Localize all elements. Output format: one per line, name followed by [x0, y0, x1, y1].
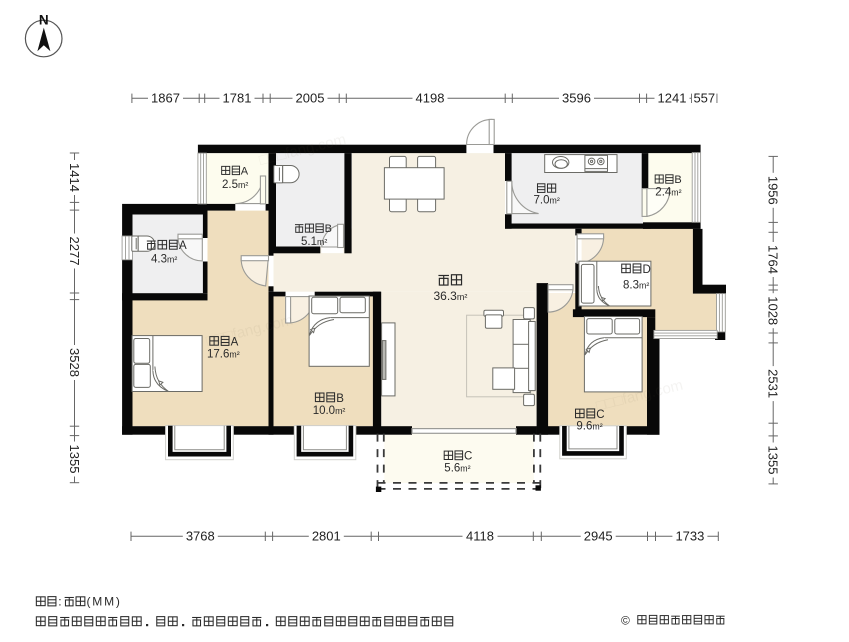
svg-text:7.0m²: 7.0m² [534, 194, 560, 206]
svg-text:A: A [231, 336, 239, 348]
svg-text:1781: 1781 [223, 91, 252, 106]
svg-text:N: N [39, 13, 49, 28]
svg-text:1241: 1241 [658, 91, 687, 106]
svg-text:3768: 3768 [186, 529, 215, 544]
svg-text:8.3m²: 8.3m² [623, 280, 649, 292]
svg-text:B: B [325, 223, 332, 235]
svg-text:2.5m²: 2.5m² [222, 179, 248, 191]
svg-text:1956: 1956 [766, 176, 781, 205]
svg-text:1764: 1764 [766, 245, 781, 274]
svg-text:1414: 1414 [67, 163, 82, 192]
svg-text:C: C [464, 451, 472, 463]
svg-text:2277: 2277 [67, 237, 82, 266]
svg-text:36.3m²: 36.3m² [434, 289, 468, 303]
svg-text:2005: 2005 [296, 91, 325, 106]
svg-text:2801: 2801 [312, 529, 341, 544]
svg-text:3596: 3596 [562, 91, 591, 106]
svg-text:1867: 1867 [151, 91, 180, 106]
svg-text:A: A [241, 166, 249, 178]
svg-text:2945: 2945 [584, 529, 613, 544]
svg-text:1733: 1733 [675, 529, 704, 544]
svg-text:9.6m²: 9.6m² [576, 420, 602, 432]
svg-text:1355: 1355 [766, 446, 781, 475]
svg-text:B: B [336, 393, 344, 405]
svg-text::: : [58, 595, 61, 609]
svg-text:1028: 1028 [766, 296, 781, 325]
svg-text:4198: 4198 [416, 91, 445, 106]
svg-text:4.3m²: 4.3m² [151, 254, 177, 266]
svg-text:A: A [179, 240, 187, 252]
svg-text:2.4m²: 2.4m² [655, 187, 681, 199]
svg-text:3528: 3528 [67, 348, 82, 377]
svg-text:1355: 1355 [67, 445, 82, 474]
svg-text:C: C [596, 409, 604, 421]
svg-text:10.0m²: 10.0m² [313, 405, 346, 417]
svg-text:2531: 2531 [766, 369, 781, 398]
svg-text:4118: 4118 [466, 529, 494, 544]
svg-text:5.1m²: 5.1m² [301, 236, 327, 248]
svg-text:557: 557 [693, 91, 715, 106]
svg-text:17.6m²: 17.6m² [207, 348, 240, 360]
svg-text:5.6m²: 5.6m² [444, 463, 470, 475]
svg-text:(MM): (MM) [87, 595, 122, 609]
svg-text:D: D [643, 264, 651, 276]
svg-text:©: © [621, 614, 630, 628]
svg-text:B: B [674, 174, 681, 186]
